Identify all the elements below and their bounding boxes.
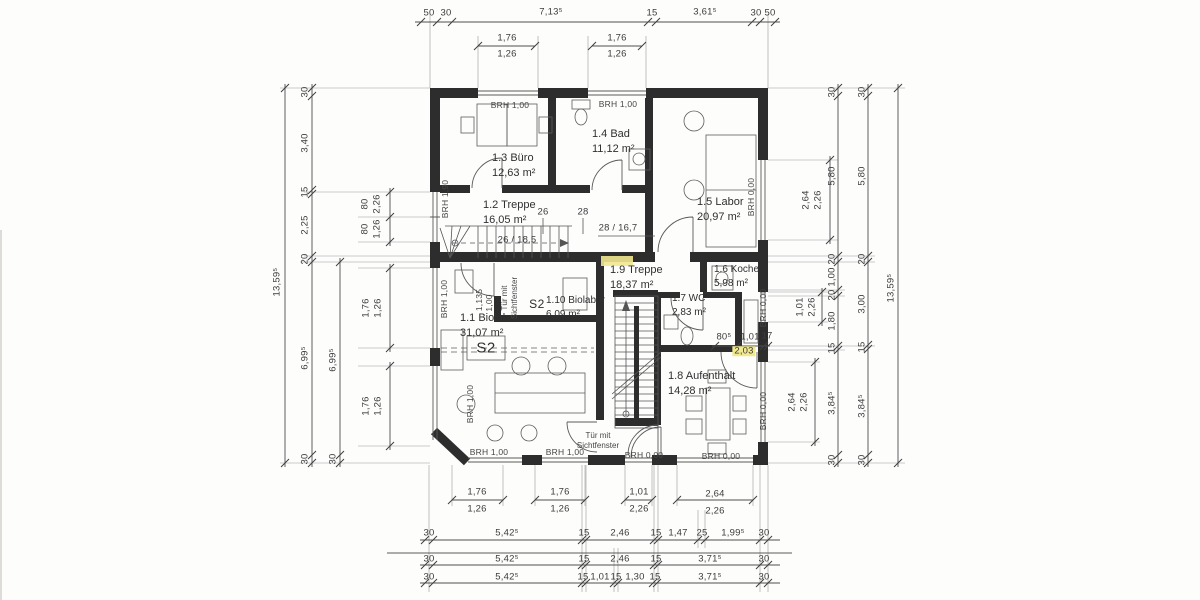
room-label-treppe-lower: 1.9 Treppe 18,37 m² bbox=[610, 263, 663, 293]
dim-label: 80 bbox=[360, 199, 370, 210]
dim-label: 1,26 bbox=[467, 504, 486, 514]
dim-label: 30 bbox=[424, 554, 435, 564]
dim-label: 1,30 bbox=[625, 572, 644, 582]
zone-tag-s2-small: S2 bbox=[529, 297, 545, 311]
room-label-buero: 1.3 Büro 12,63 m² bbox=[492, 151, 535, 181]
dim-label: 80 bbox=[360, 224, 370, 235]
dim-label: 2,64 bbox=[705, 489, 724, 499]
dim-label: 7,13⁵ bbox=[539, 7, 562, 17]
door-size-width: 1,135 bbox=[475, 289, 484, 311]
sill-label: BRH 0,00 bbox=[747, 178, 756, 216]
sill-label: BRH 1,90 bbox=[441, 180, 450, 218]
dim-label: 1,26 bbox=[550, 504, 569, 514]
dim-label: 30 bbox=[300, 454, 310, 465]
dim-label: 1,26 bbox=[607, 49, 626, 59]
dim-label: 30 bbox=[751, 8, 762, 18]
dim-label: 15 bbox=[647, 8, 658, 18]
dim-label-highlighted: 2,03 bbox=[732, 346, 755, 356]
room-label-biolabor-110: 1.10 Biolabor 6,09 m² bbox=[546, 294, 605, 321]
dim-label: 2,46 bbox=[610, 554, 629, 564]
door-size-height: 1,00 bbox=[485, 294, 494, 311]
dim-label: 1,26 bbox=[373, 298, 383, 317]
sill-label: BRH 0,00 bbox=[702, 452, 740, 461]
dim-label: 25 bbox=[697, 528, 708, 538]
dim-label: 1,26 bbox=[497, 49, 516, 59]
dim-label: 20 bbox=[300, 254, 310, 265]
dim-label: 15 bbox=[651, 528, 662, 538]
dim-label: 15 bbox=[579, 528, 590, 538]
dim-label: 2,46 bbox=[610, 528, 629, 538]
dim-label: 5,42⁵ bbox=[495, 528, 518, 538]
dim-label: 2,64 bbox=[787, 392, 797, 411]
dim-label: 15 bbox=[579, 554, 590, 564]
stair-lower bbox=[612, 296, 661, 428]
dim-label: 1,00 bbox=[827, 267, 837, 286]
dim-label: 50 bbox=[424, 8, 435, 18]
dim-label: 30 bbox=[759, 572, 770, 582]
dim-label: 30 bbox=[300, 87, 310, 98]
dim-label: 1,76 bbox=[607, 33, 626, 43]
dim-label: 15 bbox=[651, 554, 662, 564]
sill-label: BRH 0,00 bbox=[625, 451, 663, 460]
sill-label: BRH 1,00 bbox=[491, 101, 529, 110]
dim-label: 30 bbox=[759, 554, 770, 564]
dim-label: 30 bbox=[857, 87, 867, 98]
dim-label: 2,26 bbox=[813, 190, 823, 209]
dim-label: 15 bbox=[578, 572, 589, 582]
room-label-aufenthalt: 1.8 Aufenthalt 14,28 m² bbox=[668, 369, 735, 399]
dim-label: 3,40 bbox=[300, 133, 310, 152]
dim-label: 1,76 bbox=[497, 33, 516, 43]
dim-label: 3,84⁵ bbox=[857, 394, 867, 417]
dim-label: 15 bbox=[857, 342, 867, 353]
dim-label: 1,76 bbox=[361, 298, 371, 317]
dim-label: 1,47 bbox=[668, 528, 687, 538]
room-label-bad: 1.4 Bad 11,12 m² bbox=[592, 127, 635, 157]
dim-label: 1,76 bbox=[361, 396, 371, 415]
dim-label: 15 bbox=[611, 572, 622, 582]
floor-plan-canvas: 1.3 Büro 12,63 m² 1.4 Bad 11,12 m² 1.5 L… bbox=[0, 0, 1200, 600]
dim-label: 1,76 bbox=[467, 487, 486, 497]
dim-label: 20 bbox=[827, 290, 837, 301]
dim-label: 30 bbox=[857, 455, 867, 466]
dim-label: 15 bbox=[300, 187, 310, 198]
dim-label: 2,26 bbox=[799, 392, 809, 411]
dim-label: 50 bbox=[765, 8, 776, 18]
dim-label: 3,71⁵ bbox=[698, 572, 721, 582]
dim-label: 2,26 bbox=[705, 506, 724, 516]
dim-label: 2,26 bbox=[807, 297, 817, 316]
stair-run-label: 26 / 18,5 bbox=[498, 235, 537, 245]
dim-label: 3,61⁵ bbox=[693, 7, 716, 17]
dim-label: 2,26 bbox=[629, 504, 648, 514]
dim-label: 1,26 bbox=[373, 396, 383, 415]
door-note-vertical: Tür mit Sichtfenster bbox=[500, 267, 520, 329]
dim-label: 30 bbox=[441, 8, 452, 18]
dim-label: 1,01 bbox=[590, 572, 609, 582]
zone-tag-s2-large: S2 bbox=[476, 340, 495, 357]
door-note-horizontal: Tür mit Sichtfenster bbox=[567, 431, 629, 451]
dim-label: 1,01 bbox=[740, 332, 759, 342]
stair-dim-label: 28 bbox=[578, 207, 589, 217]
dim-label: 80⁵ bbox=[716, 332, 731, 342]
room-label-wc: 1.7 WC 2,83 m² bbox=[672, 292, 706, 319]
chamfer-wall bbox=[434, 431, 467, 462]
dim-label: 5,80 bbox=[857, 166, 867, 185]
dim-label: 30 bbox=[827, 455, 837, 466]
room-label-treppe-upper: 1.2 Treppe 16,05 m² bbox=[483, 198, 536, 228]
stair-dim-label: 26 bbox=[538, 207, 549, 217]
dim-label: 5,42⁵ bbox=[495, 572, 518, 582]
dim-label: 2,26 bbox=[372, 194, 382, 213]
stair-run-label: 28 / 16,7 bbox=[599, 223, 638, 233]
dim-label: 5,42⁵ bbox=[495, 554, 518, 564]
dim-label: 1,01 bbox=[629, 487, 648, 497]
room-label-labor: 1.5 Labor 20,97 m² bbox=[697, 195, 743, 225]
dim-label: 1,99⁵ bbox=[721, 528, 744, 538]
room-label-kochen: 1.6 Kochen 5,98 m² bbox=[714, 263, 765, 290]
dim-label: 20 bbox=[827, 254, 837, 265]
dim-label: 1,80 bbox=[827, 311, 837, 330]
dim-label: 1,26 bbox=[372, 219, 382, 238]
dim-label: 30 bbox=[424, 528, 435, 538]
dim-label: 6,99⁵ bbox=[328, 348, 338, 371]
sill-label: BRH 1,00 bbox=[440, 280, 449, 318]
dim-label: 20 bbox=[857, 254, 867, 265]
dim-label: 15 bbox=[650, 572, 661, 582]
dim-label: 6,99⁵ bbox=[300, 346, 310, 369]
dim-label: 30 bbox=[827, 87, 837, 98]
dim-label: 2,64 bbox=[801, 190, 811, 209]
sill-label: BRH 0,00 bbox=[759, 392, 768, 430]
dim-label: 5,80 bbox=[827, 166, 837, 185]
dim-label: 30 bbox=[328, 454, 338, 465]
dim-label: 30 bbox=[424, 572, 435, 582]
dim-label: 3,84⁵ bbox=[827, 391, 837, 414]
dim-label: 13,59⁵ bbox=[272, 268, 282, 297]
sill-label: BRH 0,00 bbox=[759, 289, 768, 327]
sill-label: BRH 1,00 bbox=[470, 448, 508, 457]
dim-label: 1,01 bbox=[795, 297, 805, 316]
dim-label: 3,00 bbox=[857, 294, 867, 313]
dim-label: 2,25 bbox=[300, 215, 310, 234]
dim-label: 30 bbox=[759, 528, 770, 538]
dim-label: 1,76 bbox=[550, 487, 569, 497]
dim-label: 15 bbox=[827, 343, 837, 354]
dim-label: 3,71⁵ bbox=[698, 554, 721, 564]
dim-label: 17 bbox=[762, 331, 773, 341]
sill-label: BRH 1,00 bbox=[599, 100, 637, 109]
sill-label: BRH 1,00 bbox=[466, 385, 475, 423]
dim-label: 13,59⁵ bbox=[886, 274, 896, 303]
